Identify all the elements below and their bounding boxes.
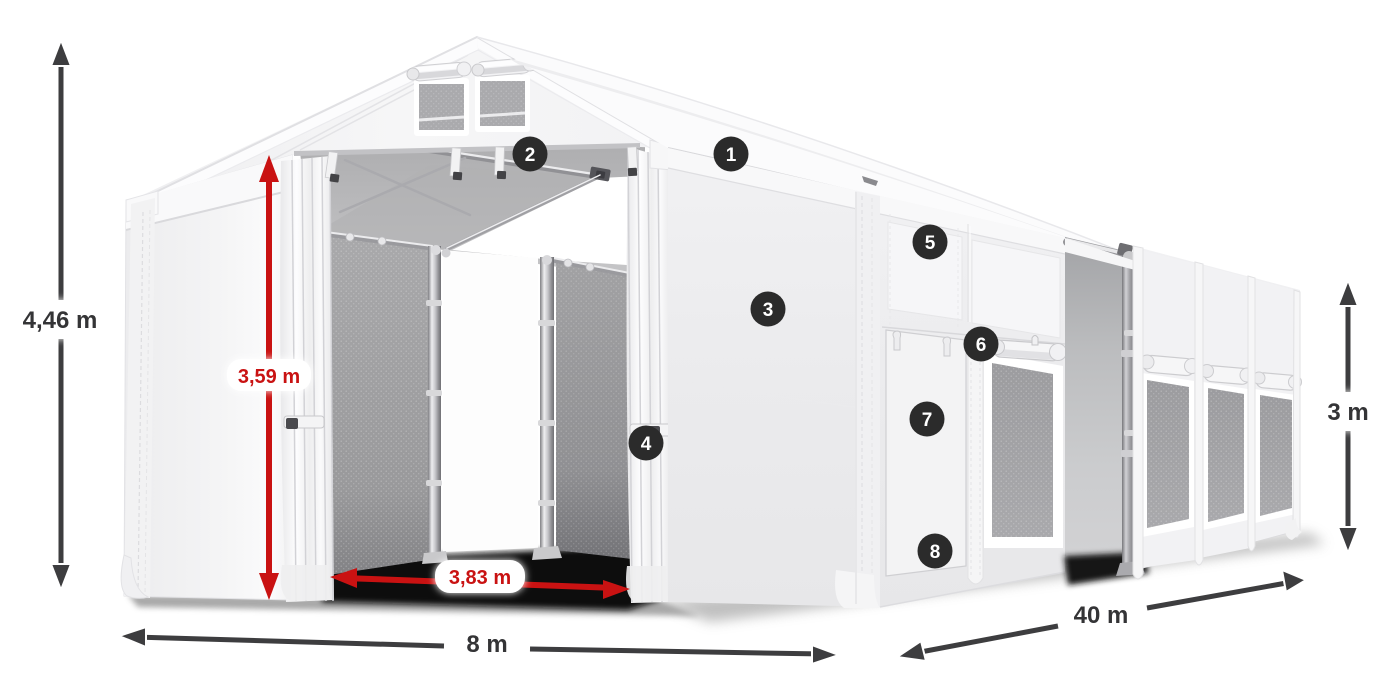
svg-text:5: 5 [925, 233, 936, 254]
svg-text:40 m: 40 m [1074, 602, 1129, 629]
svg-text:3,83 m: 3,83 m [449, 567, 511, 589]
svg-text:1: 1 [726, 145, 737, 166]
svg-text:4,46 m: 4,46 m [23, 307, 98, 334]
svg-text:6: 6 [976, 335, 987, 356]
svg-text:8: 8 [930, 542, 941, 563]
svg-text:8 m: 8 m [466, 631, 507, 658]
svg-text:4: 4 [641, 434, 652, 455]
svg-text:3: 3 [763, 300, 774, 321]
svg-text:7: 7 [922, 410, 933, 431]
svg-text:2: 2 [525, 145, 536, 166]
svg-text:3 m: 3 m [1327, 399, 1368, 426]
svg-text:3,59 m: 3,59 m [238, 366, 300, 388]
